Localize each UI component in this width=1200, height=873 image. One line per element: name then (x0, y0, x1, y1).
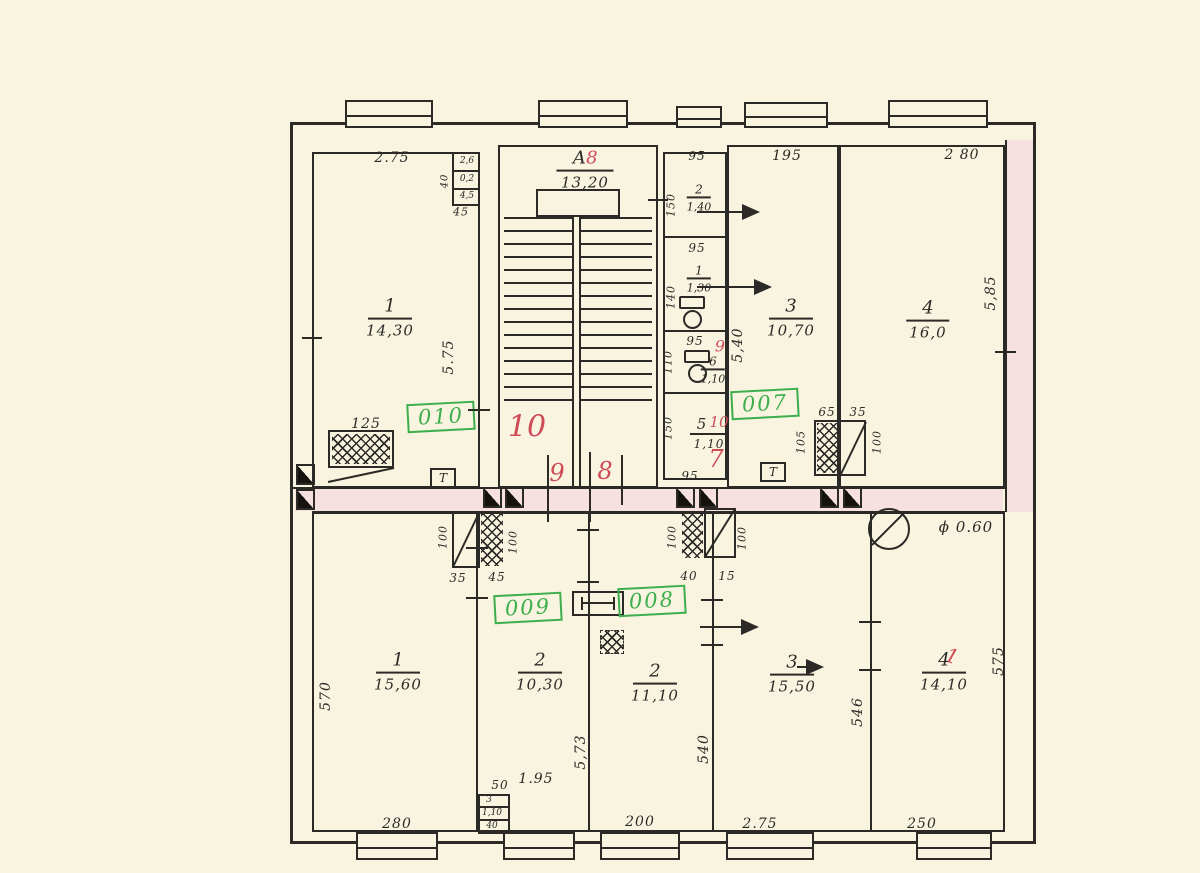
dim-b280: 280 (382, 816, 412, 832)
room-label-bot-2c: 211,10 (631, 662, 679, 705)
dim-100: 100 (666, 525, 679, 549)
dim-110: 110 (662, 350, 675, 374)
dim-v573: 5,73 (573, 734, 589, 769)
duct-box-top-div1 (452, 170, 480, 172)
dim-v540b: 540 (696, 734, 712, 764)
window (726, 832, 814, 860)
dim-95: 95 (688, 241, 705, 255)
dim-140: 140 (665, 285, 678, 309)
dim-95: 95 (688, 149, 705, 163)
dim-125: 125 (351, 416, 381, 432)
section-mark (483, 487, 502, 508)
dim-95: 95 (681, 469, 698, 483)
room-label-top-1: 114,30 (366, 297, 414, 340)
stamp-apartment-008: 008 (617, 585, 687, 618)
room-label-bot-4: 414,10 (920, 651, 968, 694)
window (538, 100, 628, 128)
bath-divider-3 (663, 392, 727, 394)
duct-02: 0,2 (460, 174, 474, 184)
section-mark (820, 487, 839, 508)
stair-letter: А (572, 148, 586, 169)
vent-shaft-bl-hatch (481, 514, 503, 566)
room-label-top-4: 416,0 (906, 299, 949, 342)
door-lintel-symbol (572, 591, 624, 616)
room-label-wc5-num: 5 (697, 415, 708, 433)
dim-b200: 200 (625, 814, 655, 830)
dim-v540: 5,40 (730, 327, 746, 362)
dim-v575: 5.75 (441, 339, 457, 374)
dim-b275: 2.75 (742, 816, 777, 832)
dim-v585: 5,85 (983, 275, 999, 310)
section-mark (296, 464, 315, 485)
staircase-label: А8 13,20 (556, 149, 613, 192)
dim-100: 100 (437, 525, 450, 549)
duct-45: 45 (453, 206, 469, 219)
window (356, 832, 438, 860)
dim-v570: 570 (318, 681, 334, 711)
dim-v575b: 575 (991, 646, 1007, 676)
dim-v546: 546 (850, 697, 866, 727)
window (888, 100, 988, 128)
window (600, 832, 680, 860)
duct-box-top-div2 (452, 188, 480, 190)
room-label-wc2: 21,40 (687, 178, 712, 213)
duct-45s: 4,5 (460, 191, 474, 201)
section-mark (296, 489, 315, 510)
vent-shaft-room1-hatch (332, 434, 390, 464)
duct-40: 40 (440, 174, 451, 189)
vent-shaft-bc (704, 508, 736, 558)
room-label-bot-2: 210,30 (516, 651, 564, 694)
dim-100: 100 (736, 526, 749, 550)
vent-shaft-bl (452, 512, 480, 568)
hatch-mark-small (600, 630, 624, 654)
window (676, 106, 722, 128)
stamp-apartment-009: 009 (493, 592, 563, 625)
t-mark-left: Т (430, 468, 456, 488)
stair-treads-right (580, 217, 652, 409)
section-mark (699, 487, 718, 508)
dim-150: 150 (662, 416, 675, 440)
dim-50: 50 (491, 778, 508, 792)
stair-red-number: 8 (586, 148, 597, 169)
dim-40: 40 (680, 569, 697, 583)
section-mark (505, 487, 524, 508)
stamp-apartment-010: 010 (406, 401, 476, 434)
red-bath-10: 10 (709, 413, 728, 431)
dim-top-195: 195 (772, 148, 802, 164)
closet-110: 1,10 (482, 808, 502, 818)
right-duct-wall (1005, 140, 1007, 512)
bath-divider-2 (663, 330, 727, 332)
red-number-8: 8 (597, 457, 612, 485)
t-mark-right: Т (760, 462, 786, 482)
corridor-top-wall (293, 487, 1005, 489)
wc5-fraction-line (690, 433, 728, 435)
window (916, 832, 992, 860)
duct-26: 2,6 (460, 156, 474, 166)
bath-divider-1 (663, 236, 727, 238)
dim-column-diameter: ϕ 0.60 (939, 518, 993, 536)
dim-35: 35 (449, 571, 466, 585)
section-mark (676, 487, 695, 508)
dim-100: 100 (871, 430, 884, 454)
room-label-top-3: 310,70 (767, 297, 815, 340)
dim-top-280: 2 80 (944, 147, 979, 163)
window (345, 100, 433, 128)
room-label-wc6: 61,10 (701, 350, 726, 385)
room-label-wc1: 11,30 (687, 259, 712, 294)
window (744, 102, 828, 128)
stair-landing (536, 189, 620, 217)
dim-105: 105 (795, 430, 808, 454)
dim-15: 15 (718, 569, 735, 583)
stamp-apartment-007: 007 (730, 388, 800, 421)
dim-35: 35 (849, 405, 866, 419)
dim-b250: 250 (907, 816, 937, 832)
vent-shaft-bc-hatch (682, 513, 703, 558)
closet-3: 3 (486, 795, 492, 805)
dim-100: 100 (507, 530, 520, 554)
stair-area: 13,20 (556, 171, 613, 191)
room-label-bot-3: 315,50 (768, 653, 816, 696)
section-mark (843, 487, 862, 508)
stair-stringer-right (579, 217, 581, 488)
stair-treads-left (504, 217, 573, 409)
dim-95: 95 (686, 334, 703, 348)
red-corridor-number: 10 (508, 410, 546, 445)
closet-40: 40 (486, 821, 497, 831)
red-number-9: 9 (549, 459, 564, 487)
room-label-bot-1: 115,60 (374, 651, 422, 694)
dim-65: 65 (818, 405, 835, 419)
floor-plan: Т Т 010 007 009 008 10 9 8 9 10 7 1 А8 1… (0, 0, 1200, 873)
dim-150: 150 (665, 193, 678, 217)
dim-top-275: 2.75 (374, 150, 409, 166)
stair-stringer-left (572, 217, 574, 488)
dim-45: 45 (488, 570, 505, 584)
room-label-wc5-area: 1,10 (694, 437, 725, 451)
toilet-icon (679, 296, 705, 326)
window (503, 832, 575, 860)
dim-195b: 1.95 (518, 771, 553, 787)
vent-shaft-367-hatch (817, 423, 841, 473)
